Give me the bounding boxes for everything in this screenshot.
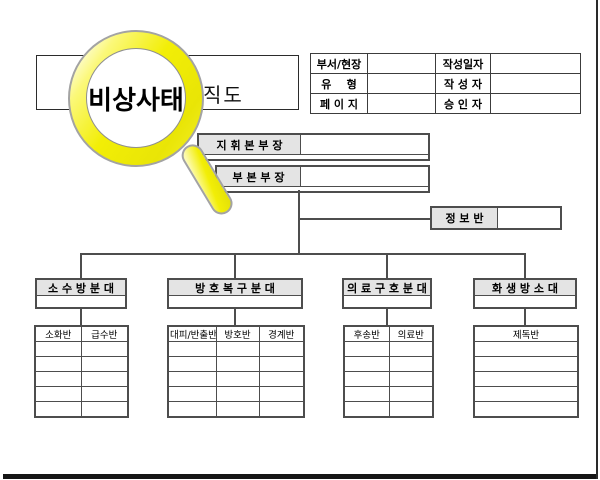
team-empty-row (474, 342, 578, 357)
team-empty-row (35, 387, 128, 402)
team-header-row: 소화반급수반 (35, 326, 128, 342)
connector-distribution (80, 253, 526, 255)
team-table: 제독반 (473, 325, 579, 418)
deputy-label: 부 본 부 장 (217, 167, 301, 186)
commander-blank-row (199, 154, 428, 159)
team-empty-row (168, 357, 304, 372)
team-empty-cell (344, 402, 389, 417)
division-label: 화 생 방 소 대 (475, 280, 575, 296)
connector-stub-division-4 (524, 255, 526, 278)
team-empty-cell (344, 357, 389, 372)
team-empty-cell (474, 402, 578, 417)
meta-label: 유 형 (311, 74, 368, 94)
team-empty-cell (35, 402, 81, 417)
team-empty-row (168, 342, 304, 357)
team-empty-row (344, 357, 433, 372)
team-empty-cell (81, 372, 128, 387)
team-empty-row (35, 357, 128, 372)
team-empty-cell (81, 387, 128, 402)
team-header-cell: 방호반 (216, 326, 259, 342)
meta-label: 승 인 자 (436, 94, 491, 114)
team-empty-cell (168, 402, 216, 417)
division-box: 화 생 방 소 대 (473, 278, 577, 309)
team-empty-cell (35, 372, 81, 387)
division-blank-row (37, 296, 125, 307)
meta-value-cell (368, 54, 436, 74)
team-empty-cell (35, 357, 81, 372)
connector-main-vertical (298, 190, 300, 255)
connector-stub-division-3 (386, 255, 388, 278)
meta-value-cell (368, 94, 436, 114)
team-empty-cell (259, 372, 304, 387)
meta-value-cell (491, 94, 581, 114)
team-header-cell: 후송반 (344, 326, 389, 342)
team-empty-cell (35, 387, 81, 402)
division-label: 의 료 구 호 분 대 (344, 280, 430, 296)
meta-label: 부서/현장 (311, 54, 368, 74)
connector-stub-table-1 (80, 308, 82, 325)
meta-row: 부서/현장 작성일자 (311, 54, 581, 74)
page-bottom-rule (3, 474, 597, 479)
team-header-cell: 경계반 (259, 326, 304, 342)
meta-row: 유 형 작 성 자 (311, 74, 581, 94)
division-label: 소 수 방 분 대 (37, 280, 125, 296)
info-team-label: 정 보 반 (432, 208, 498, 228)
page-right-rule (596, 0, 598, 479)
team-empty-cell (344, 387, 389, 402)
team-empty-cell (216, 402, 259, 417)
deputy-blank-row (217, 186, 428, 191)
team-header-row: 제독반 (474, 326, 578, 342)
team-empty-cell (81, 357, 128, 372)
meta-label: 페 이 지 (311, 94, 368, 114)
team-empty-cell (81, 342, 128, 357)
division-blank-row (344, 296, 430, 307)
team-empty-row (35, 372, 128, 387)
team-empty-cell (389, 387, 433, 402)
team-empty-row (474, 387, 578, 402)
division-box: 소 수 방 분 대 (35, 278, 127, 309)
team-empty-row (474, 402, 578, 417)
team-empty-cell (216, 372, 259, 387)
division-label: 방 호 복 구 분 대 (169, 280, 301, 296)
magnifier-label: 비상사태 (88, 80, 184, 117)
team-empty-cell (344, 372, 389, 387)
team-empty-row (168, 387, 304, 402)
division-box: 의 료 구 호 분 대 (342, 278, 432, 309)
team-empty-row (344, 402, 433, 417)
document-canvas: 직도 부서/현장 작성일자 유 형 작 성 자 페 이 지 승 인 자 (0, 0, 600, 480)
division-box: 방 호 복 구 분 대 (167, 278, 303, 309)
connector-stub-table-3 (386, 308, 388, 325)
team-empty-row (344, 342, 433, 357)
commander-label: 지 휘 본 부 장 (199, 135, 301, 154)
team-empty-cell (344, 342, 389, 357)
meta-value-cell (491, 54, 581, 74)
info-team-value-cell (498, 208, 560, 228)
meta-row: 페 이 지 승 인 자 (311, 94, 581, 114)
team-header-cell: 대피/반출반 (168, 326, 216, 342)
connector-info-branch (300, 218, 430, 220)
team-empty-cell (474, 387, 578, 402)
team-empty-cell (216, 387, 259, 402)
meta-label: 작성일자 (436, 54, 491, 74)
team-empty-cell (259, 387, 304, 402)
team-empty-row (168, 402, 304, 417)
team-empty-row (35, 402, 128, 417)
team-header-cell: 의료반 (389, 326, 433, 342)
team-empty-cell (168, 357, 216, 372)
team-empty-cell (259, 357, 304, 372)
team-empty-cell (259, 402, 304, 417)
team-empty-row (344, 372, 433, 387)
team-empty-row (344, 387, 433, 402)
connector-stub-table-4 (524, 308, 526, 325)
team-empty-cell (389, 402, 433, 417)
deputy-box: 부 본 부 장 (215, 165, 430, 193)
team-empty-cell (35, 342, 81, 357)
team-header-cell: 소화반 (35, 326, 81, 342)
connector-stub-division-1 (80, 255, 82, 278)
meta-value-cell (368, 74, 436, 94)
team-empty-cell (474, 357, 578, 372)
team-header-cell: 제독반 (474, 326, 578, 342)
team-empty-cell (168, 387, 216, 402)
meta-label: 작 성 자 (436, 74, 491, 94)
team-empty-row (168, 372, 304, 387)
division-blank-row (475, 296, 575, 307)
team-header-row: 후송반의료반 (344, 326, 433, 342)
commander-box: 지 휘 본 부 장 (197, 133, 430, 161)
team-empty-cell (168, 342, 216, 357)
team-table: 소화반급수반 (34, 325, 129, 418)
team-empty-row (35, 342, 128, 357)
team-empty-cell (474, 342, 578, 357)
connector-stub-table-2 (234, 308, 236, 325)
document-title: 직도 (203, 79, 244, 108)
team-empty-cell (389, 372, 433, 387)
team-empty-cell (474, 372, 578, 387)
team-empty-cell (389, 357, 433, 372)
team-empty-row (474, 372, 578, 387)
team-empty-cell (216, 342, 259, 357)
team-header-row: 대피/반출반방호반경계반 (168, 326, 304, 342)
team-empty-cell (216, 357, 259, 372)
connector-stub-division-2 (234, 255, 236, 278)
commander-value-cell (301, 135, 428, 154)
team-empty-cell (168, 372, 216, 387)
magnifier-lens: 비상사태 (86, 48, 186, 148)
team-table: 후송반의료반 (343, 325, 434, 418)
team-table: 대피/반출반방호반경계반 (167, 325, 305, 418)
division-blank-row (169, 296, 301, 307)
team-empty-cell (389, 342, 433, 357)
team-empty-cell (81, 402, 128, 417)
team-empty-row (474, 357, 578, 372)
info-team-box: 정 보 반 (430, 206, 562, 230)
team-header-cell: 급수반 (81, 326, 128, 342)
deputy-value-cell (301, 167, 428, 186)
meta-value-cell (491, 74, 581, 94)
meta-table: 부서/현장 작성일자 유 형 작 성 자 페 이 지 승 인 자 (310, 53, 581, 114)
team-empty-cell (259, 342, 304, 357)
